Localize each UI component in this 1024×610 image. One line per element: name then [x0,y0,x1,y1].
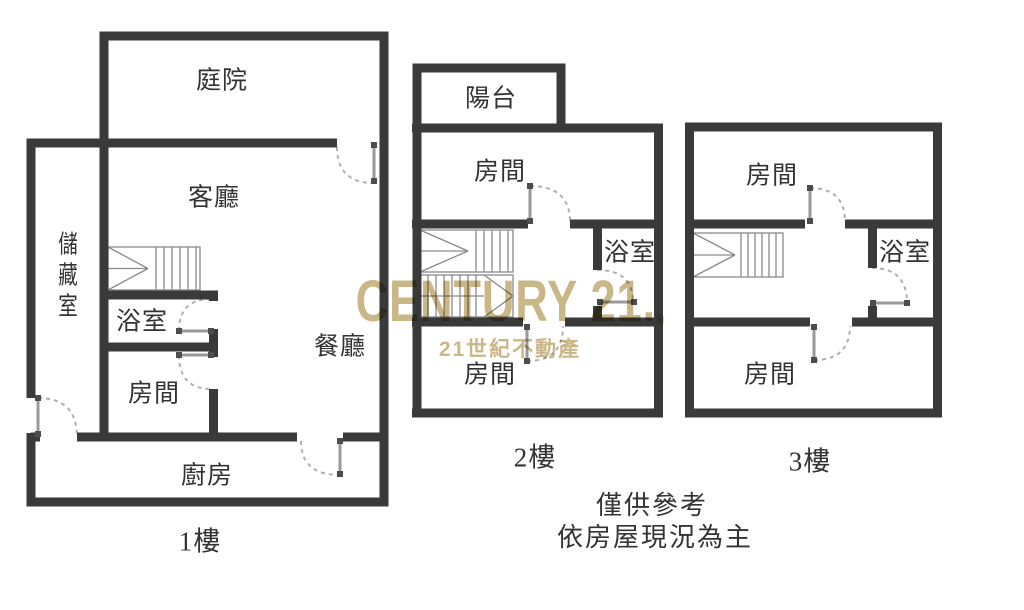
door-arc [810,188,845,222]
door-arc [872,268,907,303]
floor3-bathroom-label: 浴室 [879,241,931,266]
floor1-stairs [108,247,200,290]
floor2-bedroom-upper-label: 房間 [474,160,526,185]
door-arc [38,398,77,437]
door-arc [530,186,570,222]
floor3-title: 3樓 [789,449,832,476]
floor1-storage-label: 儲藏室 [56,231,76,324]
floor3-plan [685,127,942,413]
century21-watermark: CENTURY 21.® 21世紀不動產 [312,273,708,363]
door-arc [301,441,340,475]
floor3-bedroom-upper-label: 房間 [746,164,798,189]
floor1-courtyard-label: 庭院 [196,69,248,94]
disclaimer-line1: 僅供參考 [596,493,708,519]
door-arc [179,299,211,331]
century21-subtitle-text: 21世紀不動產 [312,333,708,363]
floor2-bedroom-lower-label: 房間 [464,363,516,388]
disclaimer-line2: 依房屋現況為主 [557,525,753,551]
floor1-bathroom-label: 浴室 [116,310,168,335]
door-arc [814,326,850,360]
floor3-door-arcs [810,188,907,360]
century21-brand-text: CENTURY 21.® [356,273,665,331]
door-arc [179,355,211,389]
floor1-plan [31,36,384,502]
floor2-balcony-label: 陽台 [465,87,517,112]
floor2-bathroom-label: 浴室 [604,241,656,266]
floor2-title: 2樓 [514,445,557,472]
floorplan-canvas: 庭院 客廳 儲藏室 浴室 房間 餐廳 廚房 1樓 陽台 房間 浴室 房間 2樓 … [0,0,1024,610]
floor1-walls [31,36,384,502]
registered-mark: ® [656,312,665,329]
door-arc [337,147,374,183]
floor3-stairs [693,233,783,277]
floor1-bedroom-label: 房間 [128,382,180,407]
floor3-bedroom-lower-label: 房間 [744,363,796,388]
floor1-living-room-label: 客廳 [188,186,240,211]
floor3-door-leaves [810,188,907,360]
floor1-kitchen-label: 廚房 [181,464,233,489]
floor1-title: 1樓 [179,529,222,556]
wall-segment [31,36,384,502]
